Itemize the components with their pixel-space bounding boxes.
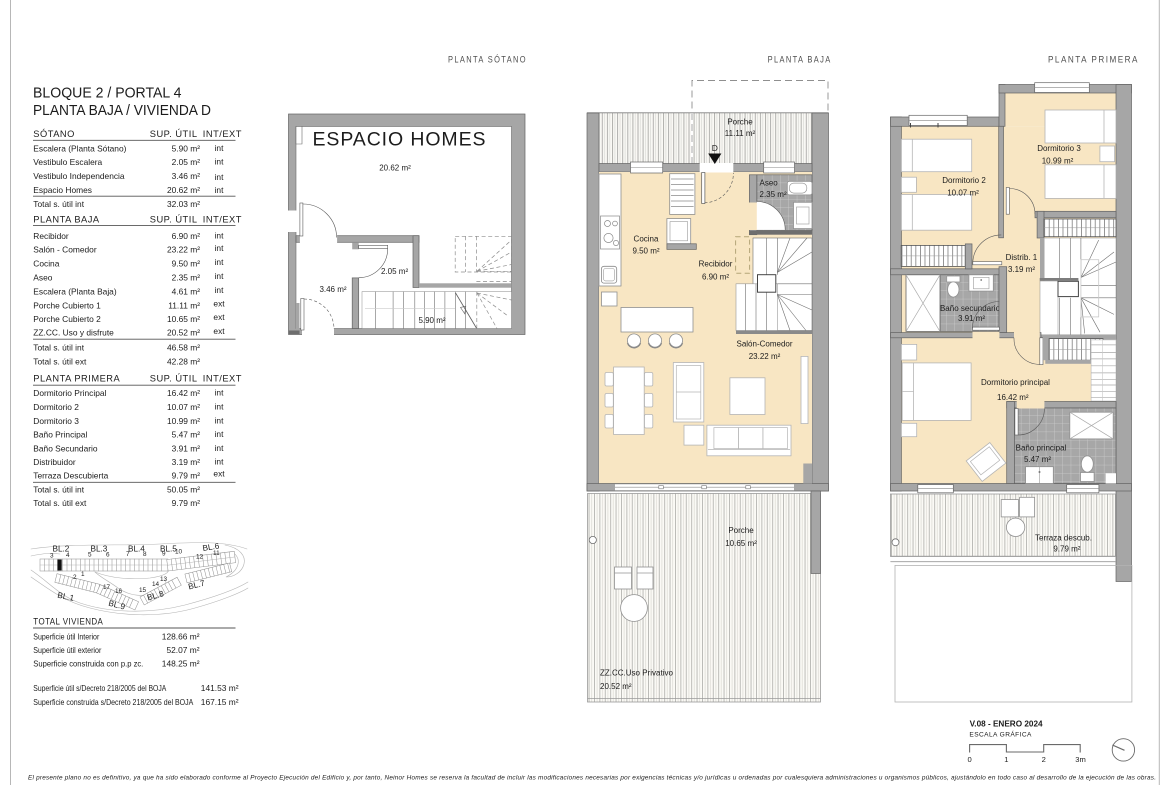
svg-text:int: int (215, 157, 225, 167)
svg-text:int: int (215, 443, 225, 453)
svg-text:Baño secundario: Baño secundario (940, 304, 1001, 313)
svg-text:Total s. útil ext: Total s. útil ext (33, 356, 87, 366)
svg-text:Cocina: Cocina (634, 235, 659, 244)
svg-text:10.65 m²: 10.65 m² (167, 314, 200, 324)
svg-text:2: 2 (73, 574, 77, 581)
svg-text:INT/EXT: INT/EXT (203, 129, 242, 139)
svg-text:ZZ.CC.Uso Privativo: ZZ.CC.Uso Privativo (600, 669, 673, 678)
svg-text:2.35 m²: 2.35 m² (172, 273, 201, 283)
svg-text:Porche Cubierto 1: Porche Cubierto 1 (33, 300, 101, 310)
svg-text:7: 7 (126, 551, 130, 558)
svg-text:141.53 m²: 141.53 m² (201, 683, 239, 693)
svg-text:10.99 m²: 10.99 m² (1042, 156, 1074, 165)
svg-text:El presente plano no es defini: El presente plano no es definitivo, ya q… (28, 775, 1156, 782)
svg-text:0: 0 (967, 755, 971, 764)
svg-text:Vestibulo Independencia: Vestibulo Independencia (33, 171, 125, 181)
svg-text:20.62 m²: 20.62 m² (379, 164, 411, 173)
svg-text:PLANTA PRIMERA: PLANTA PRIMERA (1048, 54, 1139, 64)
svg-text:9.79 m²: 9.79 m² (172, 471, 201, 481)
svg-text:20.52 m²: 20.52 m² (600, 682, 632, 691)
svg-text:int: int (215, 429, 225, 439)
svg-text:12: 12 (196, 554, 204, 561)
svg-text:int: int (215, 243, 225, 253)
svg-text:3: 3 (50, 553, 54, 560)
svg-text:Distrib. 1: Distrib. 1 (1006, 253, 1038, 262)
svg-text:PLANTA BAJA: PLANTA BAJA (33, 215, 100, 225)
svg-text:50.05 m²: 50.05 m² (167, 484, 200, 494)
svg-text:5.90 m²: 5.90 m² (172, 144, 201, 154)
svg-text:2.35 m²: 2.35 m² (760, 190, 787, 199)
svg-text:6: 6 (106, 552, 110, 559)
svg-text:Dormitorio 3: Dormitorio 3 (1037, 144, 1081, 153)
svg-text:3.91 m²: 3.91 m² (172, 443, 201, 453)
svg-text:Distribuidor: Distribuidor (33, 457, 76, 467)
svg-text:52.07 m²: 52.07 m² (166, 645, 199, 655)
svg-text:Baño Secundario: Baño Secundario (33, 443, 98, 453)
svg-text:Escalera (Planta Baja): Escalera (Planta Baja) (33, 287, 117, 297)
svg-text:23.22 m²: 23.22 m² (749, 352, 781, 361)
svg-text:9.79 m²: 9.79 m² (1053, 544, 1080, 553)
svg-text:10.07 m²: 10.07 m² (947, 188, 979, 197)
svg-text:42.28 m²: 42.28 m² (167, 356, 200, 366)
svg-text:3m: 3m (1075, 755, 1086, 764)
svg-text:SUP. ÚTIL: SUP. ÚTIL (150, 129, 198, 139)
svg-text:3.91 m²: 3.91 m² (958, 314, 985, 323)
svg-text:Terraza descub.: Terraza descub. (1035, 534, 1092, 543)
svg-text:int: int (215, 285, 225, 295)
svg-text:Salón-Comedor: Salón-Comedor (736, 340, 792, 349)
svg-text:SUP. ÚTIL: SUP. ÚTIL (150, 374, 198, 384)
svg-text:ZZ.CC. Uso y disfrute: ZZ.CC. Uso y disfrute (33, 328, 114, 338)
svg-text:int: int (215, 257, 225, 267)
svg-text:2: 2 (1042, 755, 1046, 764)
svg-text:9.50 m²: 9.50 m² (172, 259, 201, 269)
svg-text:int: int (215, 388, 225, 398)
svg-text:8: 8 (143, 551, 147, 558)
svg-text:11.11 m²: 11.11 m² (725, 129, 756, 138)
svg-text:PLANTA BAJA: PLANTA BAJA (768, 54, 832, 64)
svg-text:9.50 m²: 9.50 m² (632, 247, 659, 256)
svg-text:ESCALA GRÁFICA: ESCALA GRÁFICA (969, 730, 1032, 739)
svg-text:2.05 m²: 2.05 m² (381, 267, 408, 276)
svg-text:6.90 m²: 6.90 m² (172, 231, 201, 241)
svg-text:10.07 m²: 10.07 m² (167, 402, 200, 412)
svg-text:Total s. útil int: Total s. útil int (33, 199, 84, 209)
svg-text:148.25 m²: 148.25 m² (162, 659, 200, 669)
svg-text:TOTAL VIVIENDA: TOTAL VIVIENDA (33, 617, 103, 627)
svg-text:ext: ext (213, 312, 225, 322)
svg-text:V.08 - ENERO 2024: V.08 - ENERO 2024 (970, 720, 1043, 729)
svg-text:6.90 m²: 6.90 m² (702, 273, 729, 282)
svg-text:32.03 m²: 32.03 m² (167, 199, 200, 209)
svg-text:3.46 m²: 3.46 m² (319, 285, 346, 294)
svg-text:Superficie útil exterior: Superficie útil exterior (33, 645, 101, 655)
svg-text:Dormitorio 2: Dormitorio 2 (942, 176, 986, 185)
svg-text:Total s. útil int: Total s. útil int (33, 343, 84, 353)
svg-text:Total s. útil int: Total s. útil int (33, 484, 84, 494)
svg-text:Baño Principal: Baño Principal (33, 430, 87, 440)
svg-text:10: 10 (175, 549, 183, 556)
svg-text:Aseo: Aseo (760, 179, 779, 188)
svg-text:Porche Cubierto 2: Porche Cubierto 2 (33, 314, 101, 324)
svg-text:int: int (215, 230, 225, 240)
svg-text:16: 16 (115, 588, 123, 595)
svg-text:Recibidor: Recibidor (33, 231, 69, 241)
svg-text:11: 11 (213, 550, 220, 557)
svg-text:int: int (215, 172, 225, 182)
svg-text:int: int (215, 402, 225, 412)
svg-text:14: 14 (152, 581, 160, 588)
svg-text:Recibidor: Recibidor (699, 260, 733, 269)
svg-text:13: 13 (160, 576, 168, 583)
svg-text:Dormitorio Principal: Dormitorio Principal (33, 388, 106, 398)
svg-text:PLANTA SÓTANO: PLANTA SÓTANO (448, 54, 527, 64)
svg-text:ESPACIO HOMES: ESPACIO HOMES (313, 128, 486, 150)
svg-text:Escalera (Planta Sótano): Escalera (Planta Sótano) (33, 144, 126, 154)
svg-text:3.19 m²: 3.19 m² (172, 457, 201, 467)
svg-text:5.47 m²: 5.47 m² (172, 430, 201, 440)
svg-text:2.05 m²: 2.05 m² (172, 157, 201, 167)
svg-text:16.42 m²: 16.42 m² (167, 388, 200, 398)
svg-text:ext: ext (213, 326, 225, 336)
svg-text:Porche: Porche (728, 526, 754, 535)
svg-text:Total s. útil ext: Total s. útil ext (33, 498, 87, 508)
svg-text:20.62 m²: 20.62 m² (167, 185, 200, 195)
svg-text:3.46 m²: 3.46 m² (172, 171, 201, 181)
svg-text:ext: ext (213, 469, 225, 479)
svg-text:int: int (215, 143, 225, 153)
svg-text:15: 15 (139, 587, 147, 594)
svg-text:Salón - Comedor: Salón - Comedor (33, 245, 97, 255)
svg-text:D: D (712, 143, 718, 153)
svg-text:Superficie útil s/Decreto 218/: Superficie útil s/Decreto 218/2005 del B… (33, 683, 166, 693)
svg-text:128.66 m²: 128.66 m² (162, 632, 200, 642)
svg-text:ext: ext (213, 298, 225, 308)
svg-text:10.99 m²: 10.99 m² (167, 416, 200, 426)
svg-text:1: 1 (81, 571, 85, 578)
svg-text:int: int (215, 415, 225, 425)
svg-text:4: 4 (66, 552, 70, 559)
svg-text:PLANTA PRIMERA: PLANTA PRIMERA (33, 374, 120, 384)
svg-text:Dormitorio 3: Dormitorio 3 (33, 416, 79, 426)
svg-text:SÓTANO: SÓTANO (33, 129, 75, 139)
svg-text:Cocina: Cocina (33, 259, 59, 269)
svg-text:Vestibulo Escalera: Vestibulo Escalera (33, 157, 102, 167)
svg-text:Superficie útil Interior: Superficie útil Interior (33, 632, 99, 642)
svg-text:16.42 m²: 16.42 m² (997, 393, 1029, 402)
svg-text:10.65 m²: 10.65 m² (725, 539, 757, 548)
svg-text:BLOQUE 2 / PORTAL 4: BLOQUE 2 / PORTAL 4 (33, 85, 182, 101)
svg-text:SUP. ÚTIL: SUP. ÚTIL (150, 215, 198, 225)
svg-text:5.90 m²: 5.90 m² (418, 316, 445, 325)
svg-text:Espacio Homes: Espacio Homes (33, 185, 92, 195)
svg-text:17: 17 (103, 584, 111, 591)
svg-text:Baño principal: Baño principal (1016, 444, 1067, 453)
svg-text:1: 1 (1004, 755, 1008, 764)
svg-text:int: int (215, 185, 225, 195)
svg-text:int: int (215, 457, 225, 467)
svg-text:Superficie construida s/Decret: Superficie construida s/Decreto 218/2005… (33, 697, 193, 707)
svg-text:4.61 m²: 4.61 m² (172, 287, 201, 297)
svg-text:23.22 m²: 23.22 m² (167, 245, 200, 255)
svg-text:Aseo: Aseo (33, 273, 52, 283)
svg-text:11.11 m²: 11.11 m² (168, 300, 200, 310)
svg-text:int: int (215, 271, 225, 281)
svg-text:Dormitorio principal: Dormitorio principal (981, 378, 1050, 387)
svg-text:5: 5 (88, 552, 92, 559)
svg-text:Terraza Descubierta: Terraza Descubierta (33, 471, 108, 481)
svg-text:5.47 m²: 5.47 m² (1024, 455, 1051, 464)
svg-text:INT/EXT: INT/EXT (203, 215, 242, 225)
svg-text:Dormitorio 2: Dormitorio 2 (33, 402, 79, 412)
svg-text:Porche: Porche (727, 118, 753, 127)
svg-text:PLANTA BAJA / VIVIENDA D: PLANTA BAJA / VIVIENDA D (33, 103, 211, 119)
svg-text:167.15 m²: 167.15 m² (201, 697, 239, 707)
svg-text:9.79 m²: 9.79 m² (172, 498, 201, 508)
svg-text:INT/EXT: INT/EXT (203, 374, 242, 384)
svg-text:20.52 m²: 20.52 m² (167, 328, 200, 338)
svg-text:46.58 m²: 46.58 m² (167, 343, 200, 353)
svg-text:Superficie construida con p.p: Superficie construida con p.p zc. (33, 659, 143, 669)
svg-text:3.19 m²: 3.19 m² (1008, 265, 1035, 274)
svg-text:9: 9 (162, 551, 166, 558)
